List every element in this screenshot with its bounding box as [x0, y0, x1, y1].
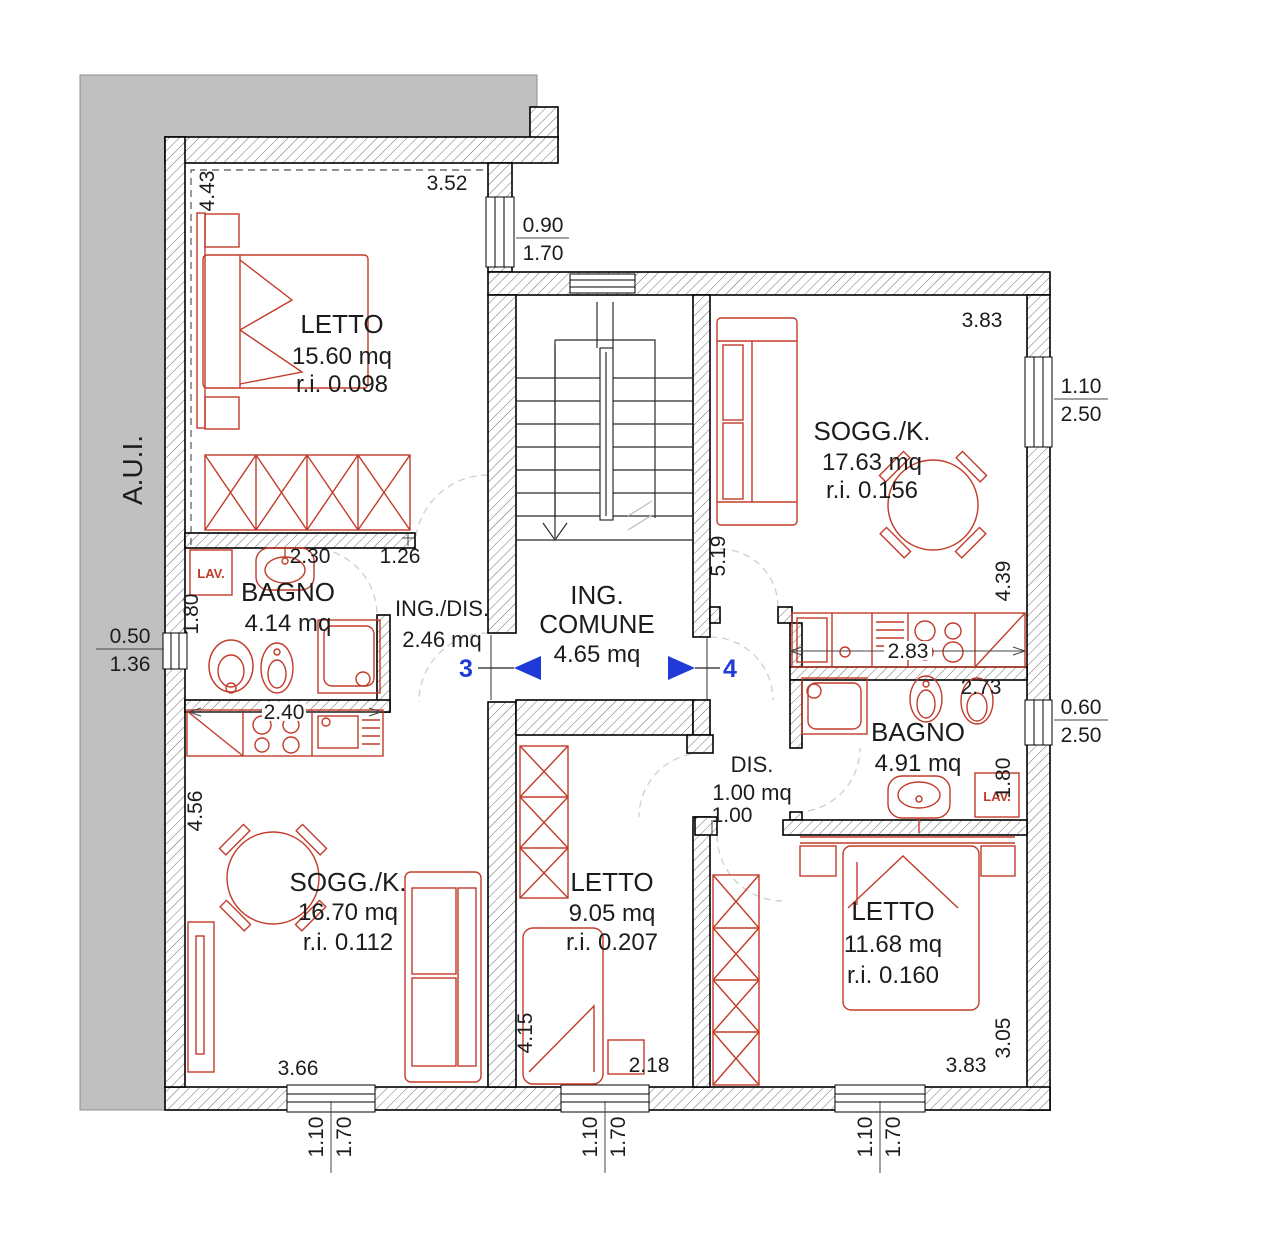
dim-519: 5.19 [707, 536, 730, 577]
room-bagno-w-name: BAGNO [241, 577, 335, 607]
svg-text:1.36: 1.36 [110, 653, 151, 676]
room-letto-se-name: LETTO [851, 896, 934, 926]
room-letto-s-name: LETTO [570, 867, 653, 897]
room-sogg-ne-name: SOGG./K. [813, 416, 930, 446]
dim-273: 2.73 [961, 676, 1002, 699]
wc-west [209, 640, 253, 693]
dim-305: 3.05 [992, 1018, 1015, 1059]
windim-060-250: 0.60 2.50 [1061, 696, 1102, 747]
entry-number-4: 4 [723, 655, 737, 683]
svg-text:1.10: 1.10 [1061, 375, 1102, 398]
entry-arrow-3 [514, 656, 541, 680]
svg-text:1.10: 1.10 [305, 1117, 328, 1158]
bidet-west [261, 643, 293, 693]
entry-arrow-4 [668, 656, 695, 680]
dim-180-west: 1.80 [180, 594, 203, 635]
window-110-250 [1025, 357, 1052, 447]
room-sogg-sw-area: 16.70 mq [298, 899, 398, 926]
svg-text:0.60: 0.60 [1061, 696, 1102, 719]
room-ing-dis-area: 2.46 mq [402, 627, 482, 652]
dim-383-bottom: 3.83 [946, 1054, 987, 1077]
room-bagno-e-area: 4.91 mq [875, 750, 962, 777]
wall-notch-tab [530, 107, 558, 140]
window-050-136 [163, 633, 187, 669]
room-ing-comune-area: 4.65 mq [554, 641, 641, 668]
shelf-sw [188, 922, 214, 1072]
wardrobe-nw [205, 455, 410, 530]
sofa-sw [405, 872, 481, 1082]
room-letto-se-area: 11.68 mq [844, 931, 942, 958]
entry-number-3: 3 [459, 655, 473, 683]
room-letto-s-ri: r.i. 0.207 [566, 929, 658, 956]
window-090-170 [486, 197, 514, 267]
svg-text:2.50: 2.50 [1061, 724, 1102, 747]
window-060-250 [1025, 700, 1052, 745]
room-sogg-ne-ri: r.i. 0.156 [826, 477, 918, 504]
room-ing-comune-line2: COMUNE [539, 609, 655, 639]
floor-plan-canvas: 3 4 A.U.I. LETTO 15.60 mq r.i. 0.098 SOG… [0, 0, 1280, 1233]
dim-352: 3.52 [427, 172, 468, 195]
dim-dis-100: 1.00 [712, 804, 753, 827]
wardrobe-se [713, 875, 759, 1085]
shower-east [802, 678, 867, 734]
stairs [516, 302, 693, 540]
room-letto-s-area: 9.05 mq [569, 900, 656, 927]
bidet-east [910, 676, 942, 722]
room-bagno-e-name: BAGNO [871, 717, 965, 747]
dim-366: 3.66 [278, 1057, 319, 1080]
svg-text:1.70: 1.70 [523, 242, 564, 265]
dim-240: 2.40 [264, 701, 305, 724]
svg-text:2.50: 2.50 [1061, 403, 1102, 426]
dim-439: 4.39 [992, 561, 1015, 602]
room-sogg-sw-name: SOGG./K. [289, 867, 406, 897]
room-dis-name: DIS. [731, 752, 774, 777]
dim-218: 2.18 [629, 1054, 670, 1077]
room-bagno-w-area: 4.14 mq [245, 610, 332, 637]
room-letto-nw-ri: r.i. 0.098 [296, 371, 388, 398]
dim-415: 4.15 [514, 1013, 537, 1054]
dim-443: 4.43 [196, 171, 219, 212]
room-sogg-ne-area: 17.63 mq [822, 449, 922, 476]
room-sogg-sw-ri: r.i. 0.112 [303, 929, 393, 956]
room-letto-se-ri: r.i. 0.160 [847, 962, 939, 989]
windim-090-170: 0.90 1.70 [523, 214, 564, 265]
room-ing-dis-name: ING./DIS. [395, 596, 489, 621]
dim-180-east: 1.80 [992, 758, 1015, 799]
dim-230: 2.30 [290, 545, 331, 568]
sofa-ne [717, 318, 797, 525]
wardrobe-s [520, 746, 568, 898]
svg-text:1.10: 1.10 [854, 1117, 877, 1158]
lav-label-west: LAV. [197, 566, 224, 581]
window-stairwell [570, 274, 635, 293]
dim-283: 2.83 [888, 640, 929, 663]
windim-110-250: 1.10 2.50 [1061, 375, 1102, 426]
svg-text:1.70: 1.70 [333, 1117, 356, 1158]
svg-text:1.70: 1.70 [882, 1117, 905, 1158]
dim-456: 4.56 [184, 791, 207, 832]
room-letto-nw-name: LETTO [300, 309, 383, 339]
svg-text:1.70: 1.70 [607, 1117, 630, 1158]
dim-126: 1.26 [380, 545, 421, 568]
svg-text:0.90: 0.90 [523, 214, 564, 237]
floor-plan-page: 3 4 A.U.I. LETTO 15.60 mq r.i. 0.098 SOG… [0, 0, 1280, 1233]
svg-text:1.10: 1.10 [579, 1117, 602, 1158]
svg-text:0.50: 0.50 [110, 625, 151, 648]
room-ing-comune-line1: ING. [570, 580, 623, 610]
dim-383-top: 3.83 [962, 309, 1003, 332]
room-dis-area: 1.00 mq [712, 780, 792, 805]
room-letto-nw-area: 15.60 mq [292, 343, 392, 370]
aui-label: A.U.I. [117, 435, 148, 505]
